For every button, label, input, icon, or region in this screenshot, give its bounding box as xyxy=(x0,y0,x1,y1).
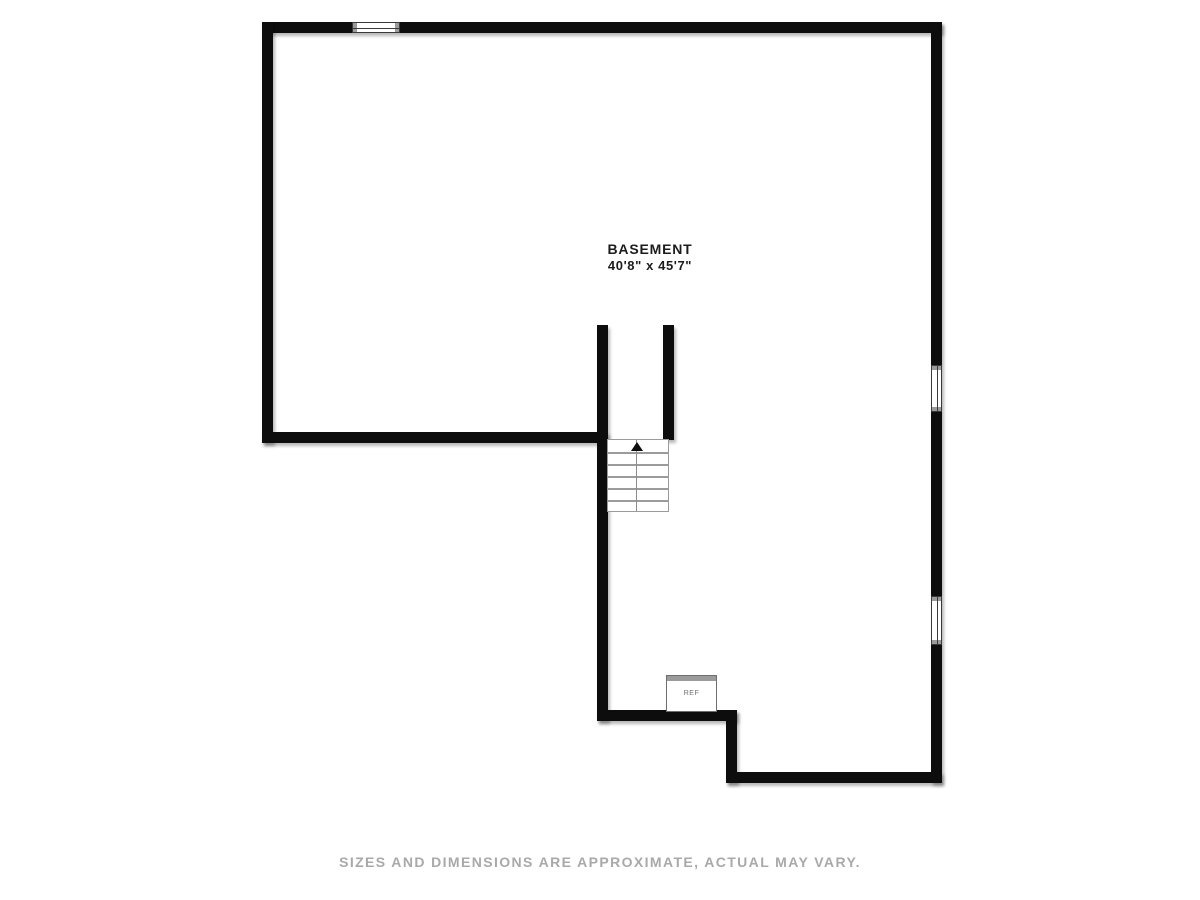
stair-tread xyxy=(608,452,668,454)
room-name: BASEMENT xyxy=(500,242,800,257)
stair-tread xyxy=(608,476,668,478)
refrigerator-label: REF xyxy=(667,690,716,697)
stair-tread xyxy=(608,500,668,502)
refrigerator: REF xyxy=(666,675,717,712)
wall-stairwell-left xyxy=(597,325,608,721)
wall-bottom xyxy=(726,772,942,783)
stair-tread xyxy=(608,488,668,490)
room-dimensions: 40'8" x 45'7" xyxy=(500,258,800,273)
room-label-group: BASEMENT 40'8" x 45'7" xyxy=(500,242,800,273)
staircase xyxy=(607,439,669,512)
refrigerator-top-edge xyxy=(667,676,716,681)
window-right-wall-lower xyxy=(931,596,942,645)
wall-stairwell-right xyxy=(663,325,674,440)
window-top-wall xyxy=(352,22,400,33)
wall-left xyxy=(262,22,273,443)
wall-upper-room-bottom xyxy=(262,432,608,443)
window-right-wall-upper xyxy=(931,365,942,412)
disclaimer-text: SIZES AND DIMENSIONS ARE APPROXIMATE, AC… xyxy=(0,854,1200,870)
stairs-up-arrow-icon xyxy=(631,442,643,451)
stair-tread xyxy=(608,464,668,466)
floorplan-canvas: REF BASEMENT 40'8" x 45'7" SIZES AND DIM… xyxy=(0,0,1200,900)
